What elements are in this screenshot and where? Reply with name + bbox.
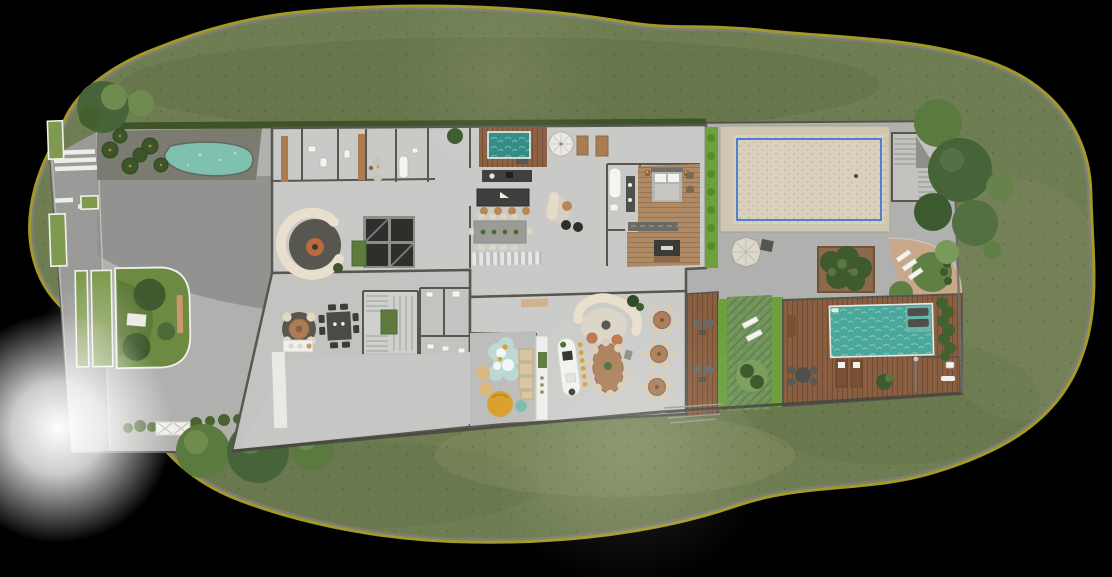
tree-planter [818, 246, 874, 292]
vanity-mirror [596, 136, 608, 156]
in-pool-lounger [908, 319, 929, 328]
bench [941, 376, 955, 381]
stair-planter [381, 310, 397, 334]
bathtub [609, 168, 621, 198]
ball [854, 174, 858, 178]
pouf [476, 366, 490, 380]
site-plan-stage [0, 0, 1112, 577]
console-bench [521, 299, 548, 308]
closet-strip [358, 134, 365, 180]
armchair [686, 186, 694, 193]
soft-glow [41, 275, 151, 385]
in-pool-lounger [907, 308, 928, 317]
site-plan [0, 0, 1112, 577]
armchair [686, 172, 694, 179]
palm-garden [97, 128, 262, 180]
deck-bench [788, 315, 796, 337]
closet-strip [281, 136, 288, 182]
internal-courtyard-skylight [363, 216, 415, 268]
lit-wall [272, 352, 288, 428]
staircase [364, 292, 417, 353]
games-table [326, 311, 351, 340]
pool-area [783, 294, 962, 406]
plant [333, 263, 343, 273]
pouf [479, 382, 493, 396]
pool-step [831, 308, 838, 312]
soft-glow [483, 299, 773, 577]
toilet [610, 204, 618, 211]
double-vanity [626, 176, 635, 212]
hedge-strip [772, 297, 783, 407]
fire-lounge [281, 213, 343, 275]
striped-mat [472, 251, 542, 265]
interior-garden [352, 241, 366, 266]
garden-bench [177, 295, 184, 333]
bathtub [399, 156, 408, 178]
